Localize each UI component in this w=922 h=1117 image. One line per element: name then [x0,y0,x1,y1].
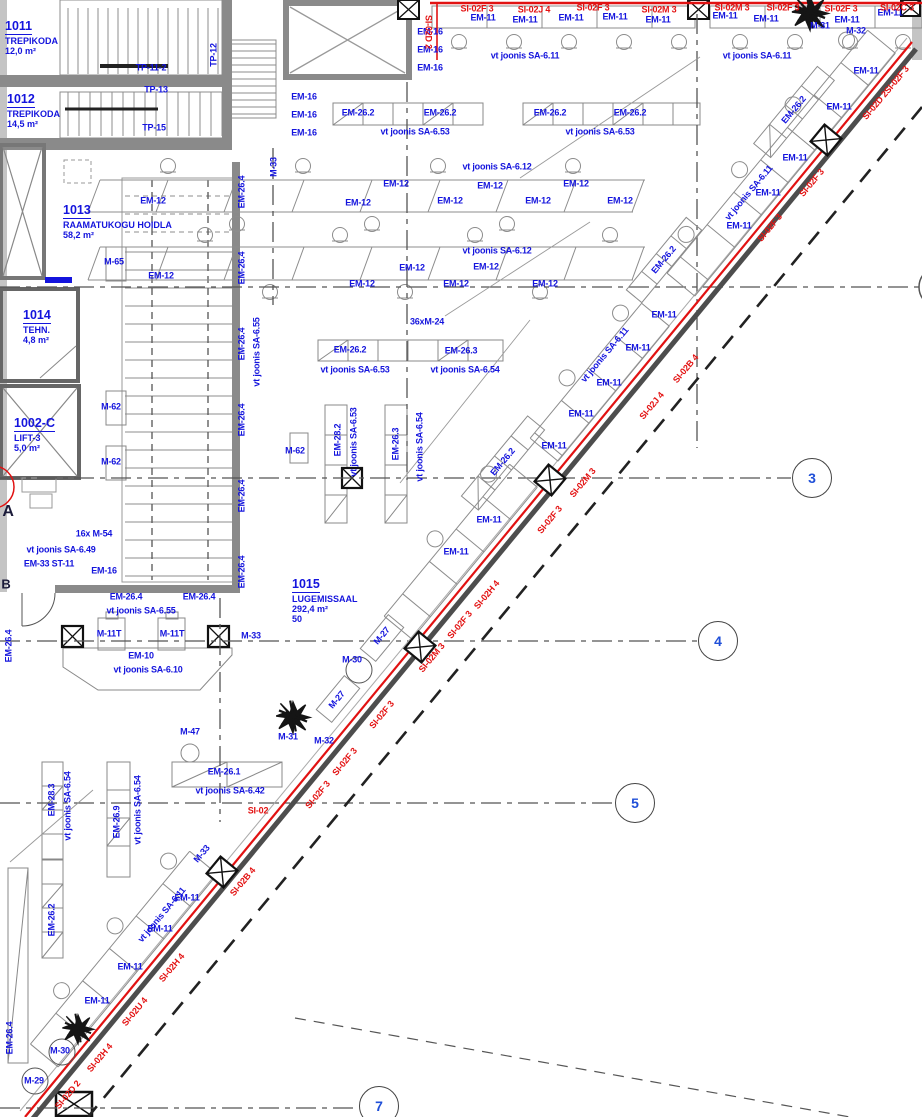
plan-label: EM-26.2 [342,109,375,118]
plan-label: EM-12 [532,280,558,289]
plan-label: vt joonis SA-6.12 [462,247,531,256]
plan-label: EM-11 [568,410,593,419]
plan-label: EM-26.4 [183,593,216,602]
room-name: TEHN. [23,325,51,335]
room-area: 292,4 m² [292,604,358,614]
plan-label: TP-15 [142,124,166,133]
grid-letter: A [2,504,13,520]
room-label: 1013RAAMATUKOGU HOIDLA58,2 m² [63,200,172,240]
plan-linework [0,0,922,1117]
plan-label: TP-13 [144,86,168,95]
plan-label: vt joonis SA-6.54 [416,412,425,481]
plan-label: EM-12 [148,272,174,281]
room-area: 12,0 m² [5,46,58,56]
plan-label: M-11T [160,630,185,639]
plan-label: EM-11 [853,67,878,76]
plan-label: M-32 [314,737,334,746]
plan-label: M-33 [241,632,261,641]
plan-label: SI-02D 2 [424,15,433,49]
room-label: 1015LUGEMISSAAL292,4 m²50 [292,574,358,624]
plan-label: EM-11 [726,222,751,231]
plan-label: vt joonis SA-6.49 [26,546,95,555]
plan-label: SI-02F 3 [461,5,494,14]
room-number: 1013 [63,203,91,219]
plan-label: EM-12 [345,199,371,208]
plan-label: EM-26.2 [534,109,567,118]
room-area: 5,0 m² [14,443,55,453]
plan-label: vt joonis SA-6.54 [64,771,73,840]
room-name: TREPIKODA [7,109,60,119]
plan-label: EM-12 [525,197,551,206]
plan-label: EM-11 [753,15,778,24]
plan-label: M-29 [24,1077,44,1086]
room-name: RAAMATUKOGU HOIDLA [63,220,172,230]
plan-label: EM-26.3 [445,347,478,356]
plan-label: TP-12 [210,43,219,67]
plan-label: SI-02C 3 [880,4,914,13]
plan-label: EM-11 [470,14,495,23]
plan-label: EM-11 [712,12,737,21]
plan-label: EM-11 [84,997,109,1006]
plan-label: EM-12 [349,280,375,289]
plan-label: EM-26.2 [48,904,57,937]
room-area: 58,2 m² [63,230,172,240]
plan-label: EM-16 [291,93,317,102]
plan-label: EM-16 [91,567,117,576]
plan-label: vt joonis SA-6.12 [462,163,531,172]
plan-label: EM-11 [834,16,859,25]
plan-label: M-62 [101,403,121,412]
plan-label: M-33 [270,157,279,177]
plan-label: M-31 [810,22,830,31]
room-area: 14,5 m² [7,119,60,129]
room-area: 4,8 m² [23,335,51,345]
plan-label: vt joonis SA-6.53 [350,407,359,476]
plan-label: vt joonis SA-6.53 [565,128,634,137]
plan-label: vt joonis SA-6.55 [253,317,262,386]
plan-label: EM-11 [782,154,807,163]
plan-label: EM-10 [128,652,154,661]
plan-label: EM-26.4 [238,404,247,437]
plan-label: SI-02M 3 [642,6,677,15]
room-extra: 50 [292,614,358,624]
plan-label: EM-11 [596,379,621,388]
plan-label: EM-11 [558,14,583,23]
plan-label: EM-12 [563,180,589,189]
plan-label: vt joonis SA-6.55 [106,607,175,616]
plan-label: EM-12 [477,182,503,191]
plan-label: M-62 [285,447,305,456]
plan-label: EM-11 [117,963,142,972]
room-label: 1002-CLIFT-35,0 m² [14,413,55,453]
room-number: 1011 [5,19,32,35]
plan-label: M-65 [104,258,124,267]
plan-label: EM-28.3 [48,784,57,817]
plan-label: EM-11 [826,103,851,112]
room-name: LIFT-3 [14,433,55,443]
grid-letter: B [1,578,10,591]
plan-label: EM-12 [607,197,633,206]
plan-label: EM-12 [383,180,409,189]
plan-label: EM-11 [651,311,676,320]
plan-label: TP-11-2 [136,64,167,73]
plan-label: EM-12 [473,263,499,272]
plan-label: 36xM-24 [410,318,444,327]
grid-bubble: 5 [615,783,655,823]
plan-label: EM-33 ST-11 [24,560,74,569]
plan-label: EM-11 [755,189,780,198]
plan-label: EM-16 [291,111,317,120]
room-number: 1012 [7,92,35,108]
plan-label: vt joonis SA-6.54 [430,366,499,375]
plan-label: vt joonis SA-6.53 [320,366,389,375]
plan-label: EM-11 [476,516,501,525]
plan-label: EM-11 [541,442,566,451]
room-name: LUGEMISSAAL [292,594,358,604]
plan-label: vt joonis SA-6.54 [134,775,143,844]
plan-label: EM-26.2 [614,109,647,118]
plan-label: M-11T [97,630,122,639]
plan-label: EM-11 [625,344,650,353]
plan-label: EM-12 [140,197,166,206]
room-label: 1014TEHN.4,8 m² [23,305,51,345]
plan-label: SI-02J 4 [518,6,550,15]
plan-label: M-62 [101,458,121,467]
plan-label: EM-16 [417,64,443,73]
plan-label: EM-11 [443,548,468,557]
plan-label: EM-16 [291,129,317,138]
plan-label: EM-26.4 [5,630,14,663]
plan-label: EM-12 [443,280,469,289]
plan-label: EM-11 [512,16,537,25]
plan-label: vt joonis SA-6.11 [491,52,560,61]
plan-label: SI-02M 3 [715,4,750,13]
room-number: 1002-C [14,416,55,432]
plan-label: EM-26.3 [392,428,401,461]
plan-label: EM-11 [602,13,627,22]
plan-label: M-32 [846,27,866,36]
plan-label: SI-02 [248,807,269,816]
plan-label: EM-11 [645,16,670,25]
plan-label: SI-02F 3 [825,5,858,14]
plan-label: EM-12 [437,197,463,206]
plan-label: M-31 [278,733,298,742]
plan-label: SI-02F 3 [577,4,610,13]
room-number: 1014 [23,308,51,324]
plan-label: M-30 [342,656,362,665]
plan-label: EM-26.2 [334,346,367,355]
plan-label: SI-02F 3 [767,4,800,13]
room-name: TREPIKODA [5,36,58,46]
plan-label: EM-26.4 [6,1022,15,1055]
plan-label: M-30 [50,1047,70,1056]
grid-bubble: 4 [698,621,738,661]
plan-label: EM-26.4 [238,176,247,209]
plan-label: M-47 [180,728,200,737]
room-number: 1015 [292,577,320,593]
plan-label: EM-26.4 [238,556,247,589]
plan-label: 16x M-54 [76,530,112,539]
plan-label: EM-26.2 [424,109,457,118]
plan-label: EM-26.4 [110,593,143,602]
plan-label: EM-26.9 [113,806,122,839]
plan-label: EM-12 [399,264,425,273]
plan-label: vt joonis SA-6.11 [723,52,792,61]
room-label: 1011TREPIKODA12,0 m² [5,16,58,56]
plan-label: vt joonis SA-6.53 [380,128,449,137]
plan-label: vt joonis SA-6.10 [113,666,182,675]
plan-label: EM-26.4 [238,252,247,285]
plan-label: EM-28.2 [334,424,343,457]
plan-label: EM-26.4 [238,480,247,513]
room-label: 1012TREPIKODA14,5 m² [7,89,60,129]
plan-label: EM-26.4 [238,328,247,361]
floor-plan: 1011TREPIKODA12,0 m²1012TREPIKODA14,5 m²… [0,0,922,1117]
grid-bubble: 3 [792,458,832,498]
plan-label: vt joonis SA-6.42 [195,787,264,796]
plan-label: EM-26.1 [208,768,241,777]
